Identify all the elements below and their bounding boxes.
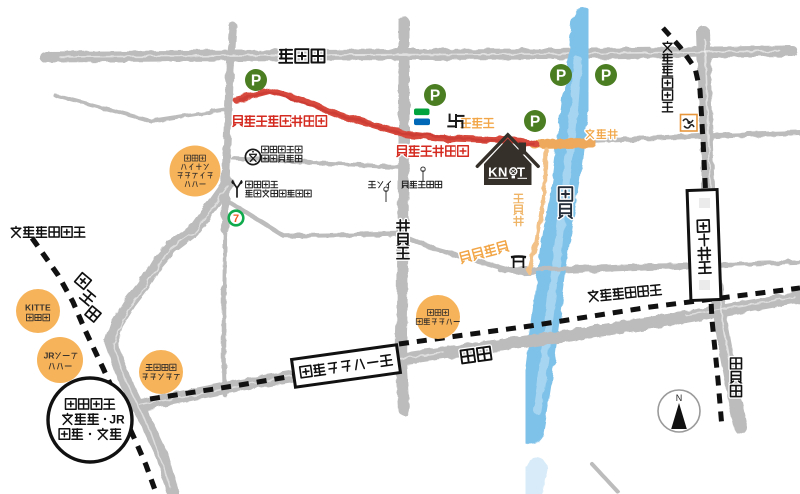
svg-text:KITTE: KITTE — [25, 303, 51, 313]
svg-text:N: N — [676, 393, 683, 403]
svg-text:T: T — [517, 165, 525, 180]
svg-text:P: P — [430, 87, 440, 104]
svg-text:P: P — [601, 67, 611, 84]
svg-text:P: P — [251, 72, 261, 89]
svg-text:JR: JR — [109, 413, 125, 427]
svg-text:KN: KN — [488, 165, 508, 180]
svg-text:JR: JR — [44, 351, 55, 361]
svg-text:7: 7 — [233, 213, 239, 225]
svg-text:P: P — [556, 67, 566, 84]
svg-text:P: P — [530, 113, 540, 130]
